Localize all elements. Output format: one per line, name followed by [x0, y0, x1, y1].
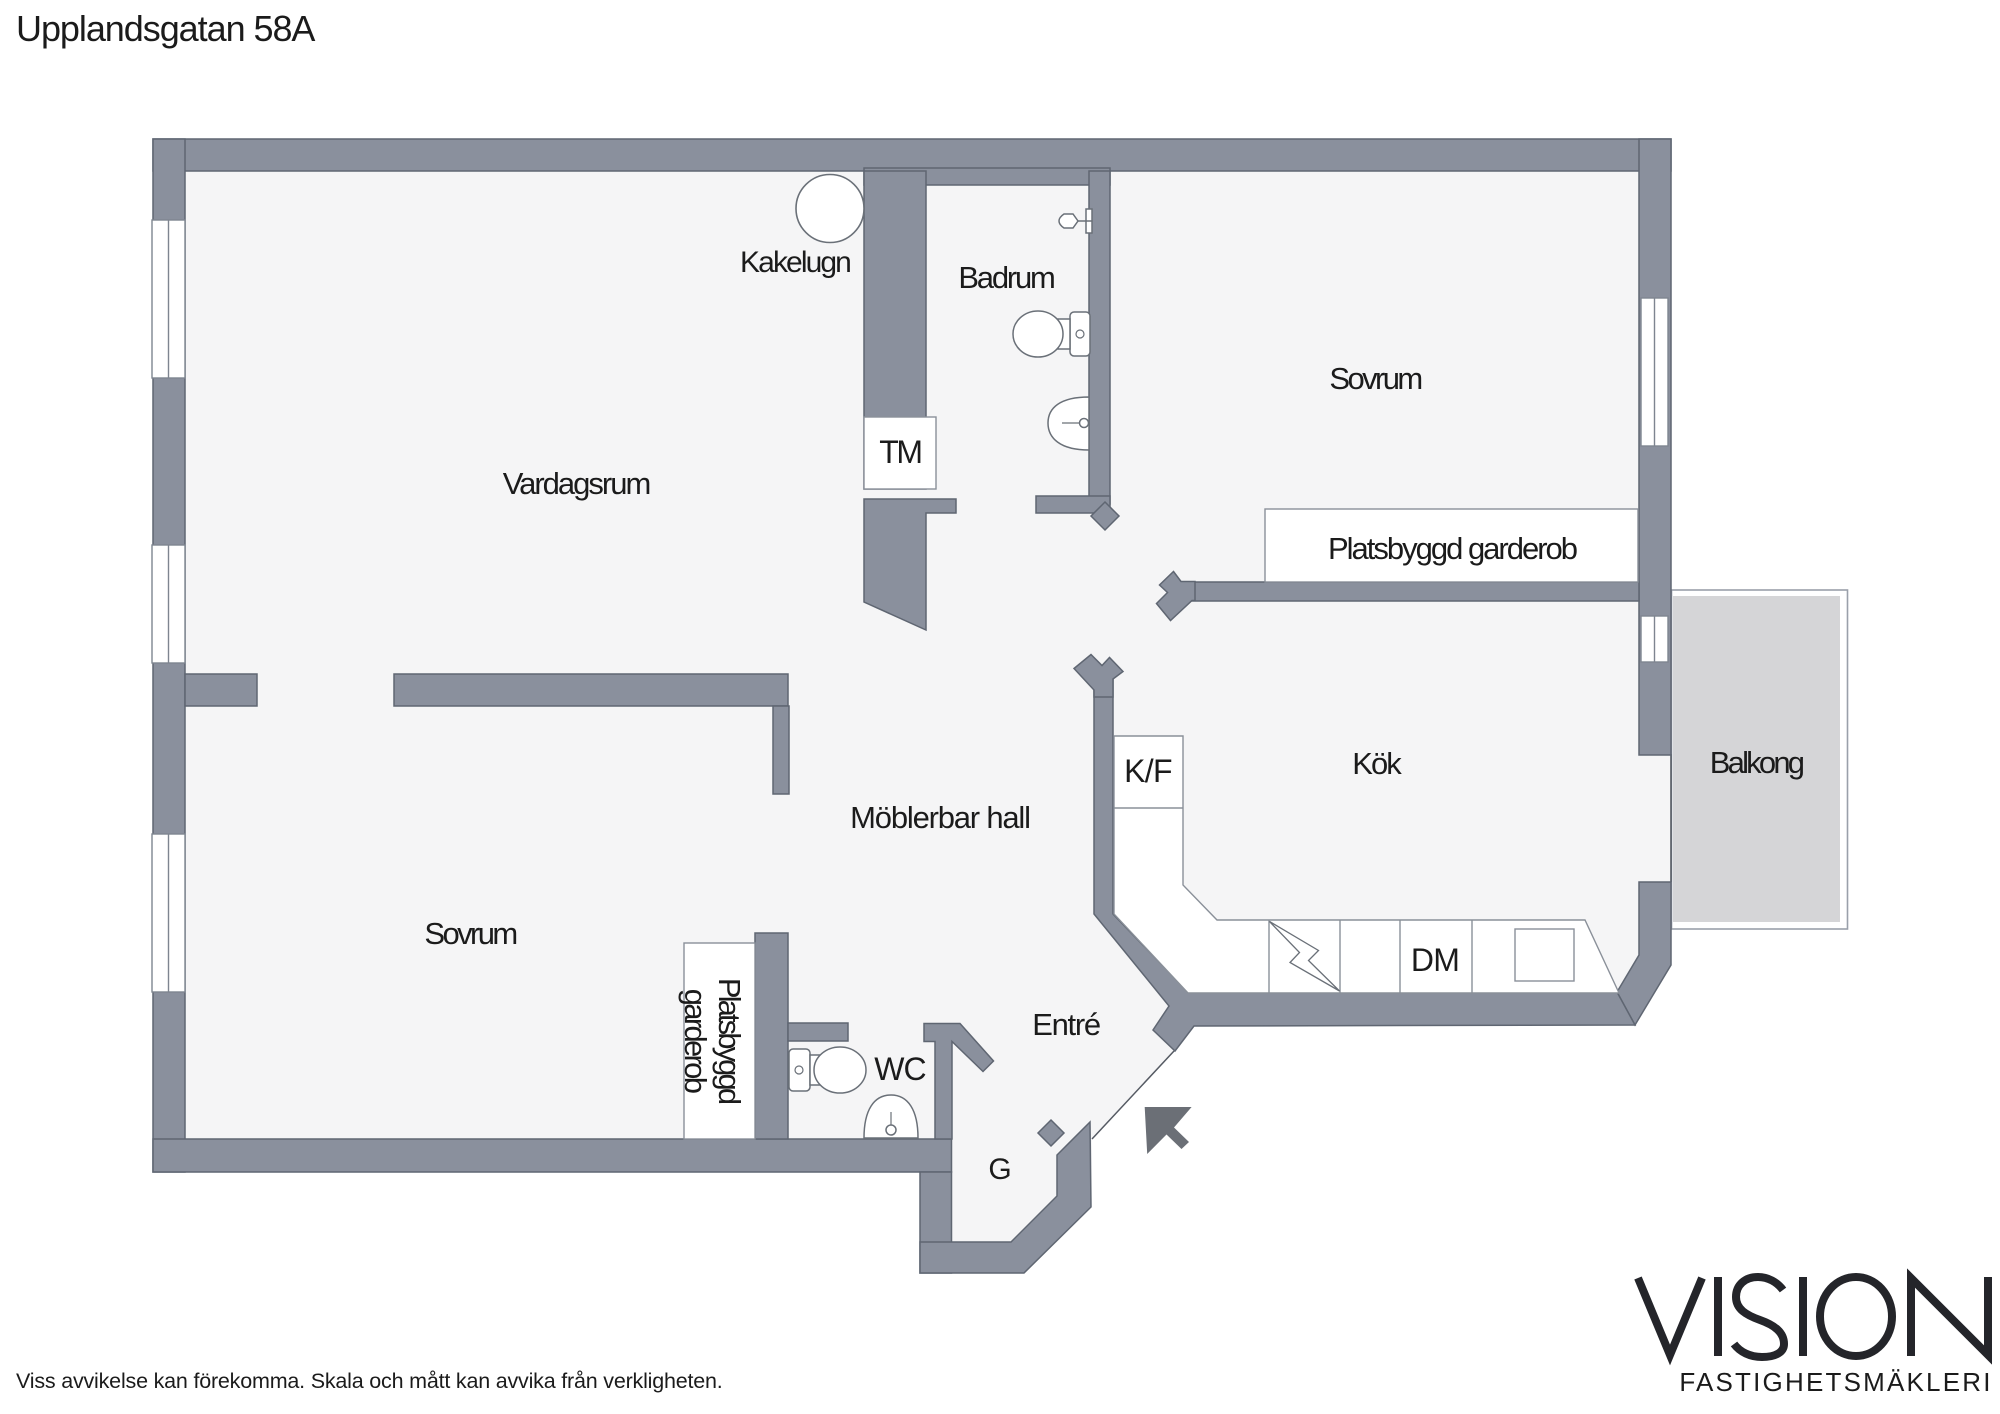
svg-text:garderob: garderob [678, 989, 713, 1093]
svg-text:Sovrum: Sovrum [424, 916, 516, 951]
svg-text:Entré: Entré [1032, 1007, 1100, 1042]
svg-text:G: G [988, 1153, 1011, 1186]
svg-text:Vardagsrum: Vardagsrum [503, 466, 650, 501]
svg-text:Möblerbar hall: Möblerbar hall [850, 800, 1030, 835]
svg-text:K/F: K/F [1124, 753, 1172, 789]
svg-text:Kakelugn: Kakelugn [740, 246, 850, 279]
svg-text:Platsbyggd garderob: Platsbyggd garderob [1328, 531, 1577, 566]
svg-text:Balkong: Balkong [1710, 745, 1804, 780]
svg-text:DM: DM [1411, 942, 1459, 978]
svg-text:WC: WC [874, 1051, 926, 1087]
svg-text:TM: TM [879, 434, 921, 470]
svg-text:Kök: Kök [1352, 746, 1402, 781]
svg-text:FASTIGHETSMÄKLERI: FASTIGHETSMÄKLERI [1679, 1367, 1992, 1397]
svg-text:Upplandsgatan 58A: Upplandsgatan 58A [16, 8, 315, 49]
svg-text:Sovrum: Sovrum [1329, 361, 1421, 396]
svg-text:Badrum: Badrum [958, 260, 1054, 295]
svg-text:Platsbyggd: Platsbyggd [712, 978, 747, 1104]
svg-text:Viss avvikelse kan förekomma.: Viss avvikelse kan förekomma. Skala och … [16, 1369, 723, 1393]
